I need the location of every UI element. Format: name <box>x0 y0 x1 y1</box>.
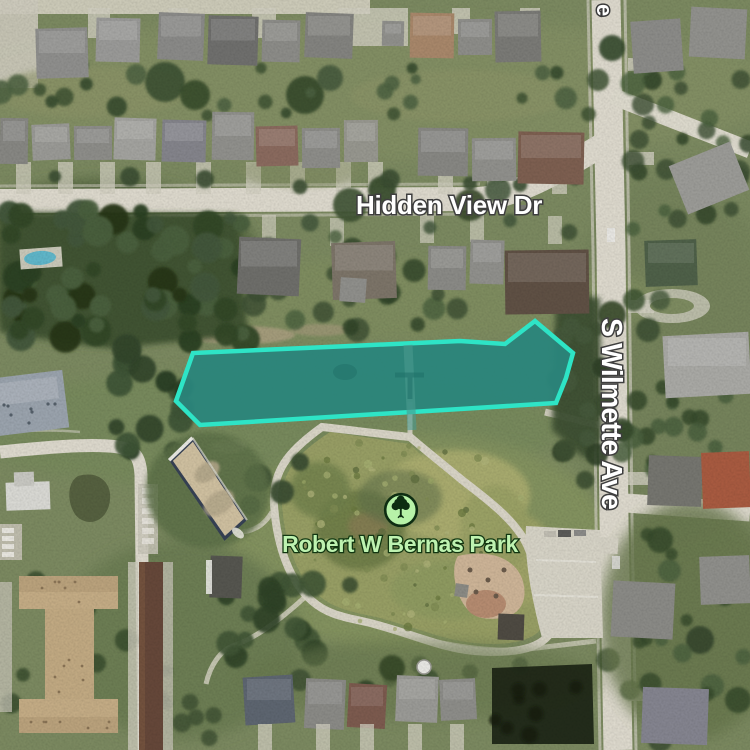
svg-text:S Wilmette Ave: S Wilmette Ave <box>595 318 627 509</box>
svg-text:Hidden View Dr: Hidden View Dr <box>356 190 542 220</box>
svg-text:e: e <box>592 4 617 16</box>
svg-text:Robert W Bernas Park: Robert W Bernas Park <box>282 531 518 557</box>
